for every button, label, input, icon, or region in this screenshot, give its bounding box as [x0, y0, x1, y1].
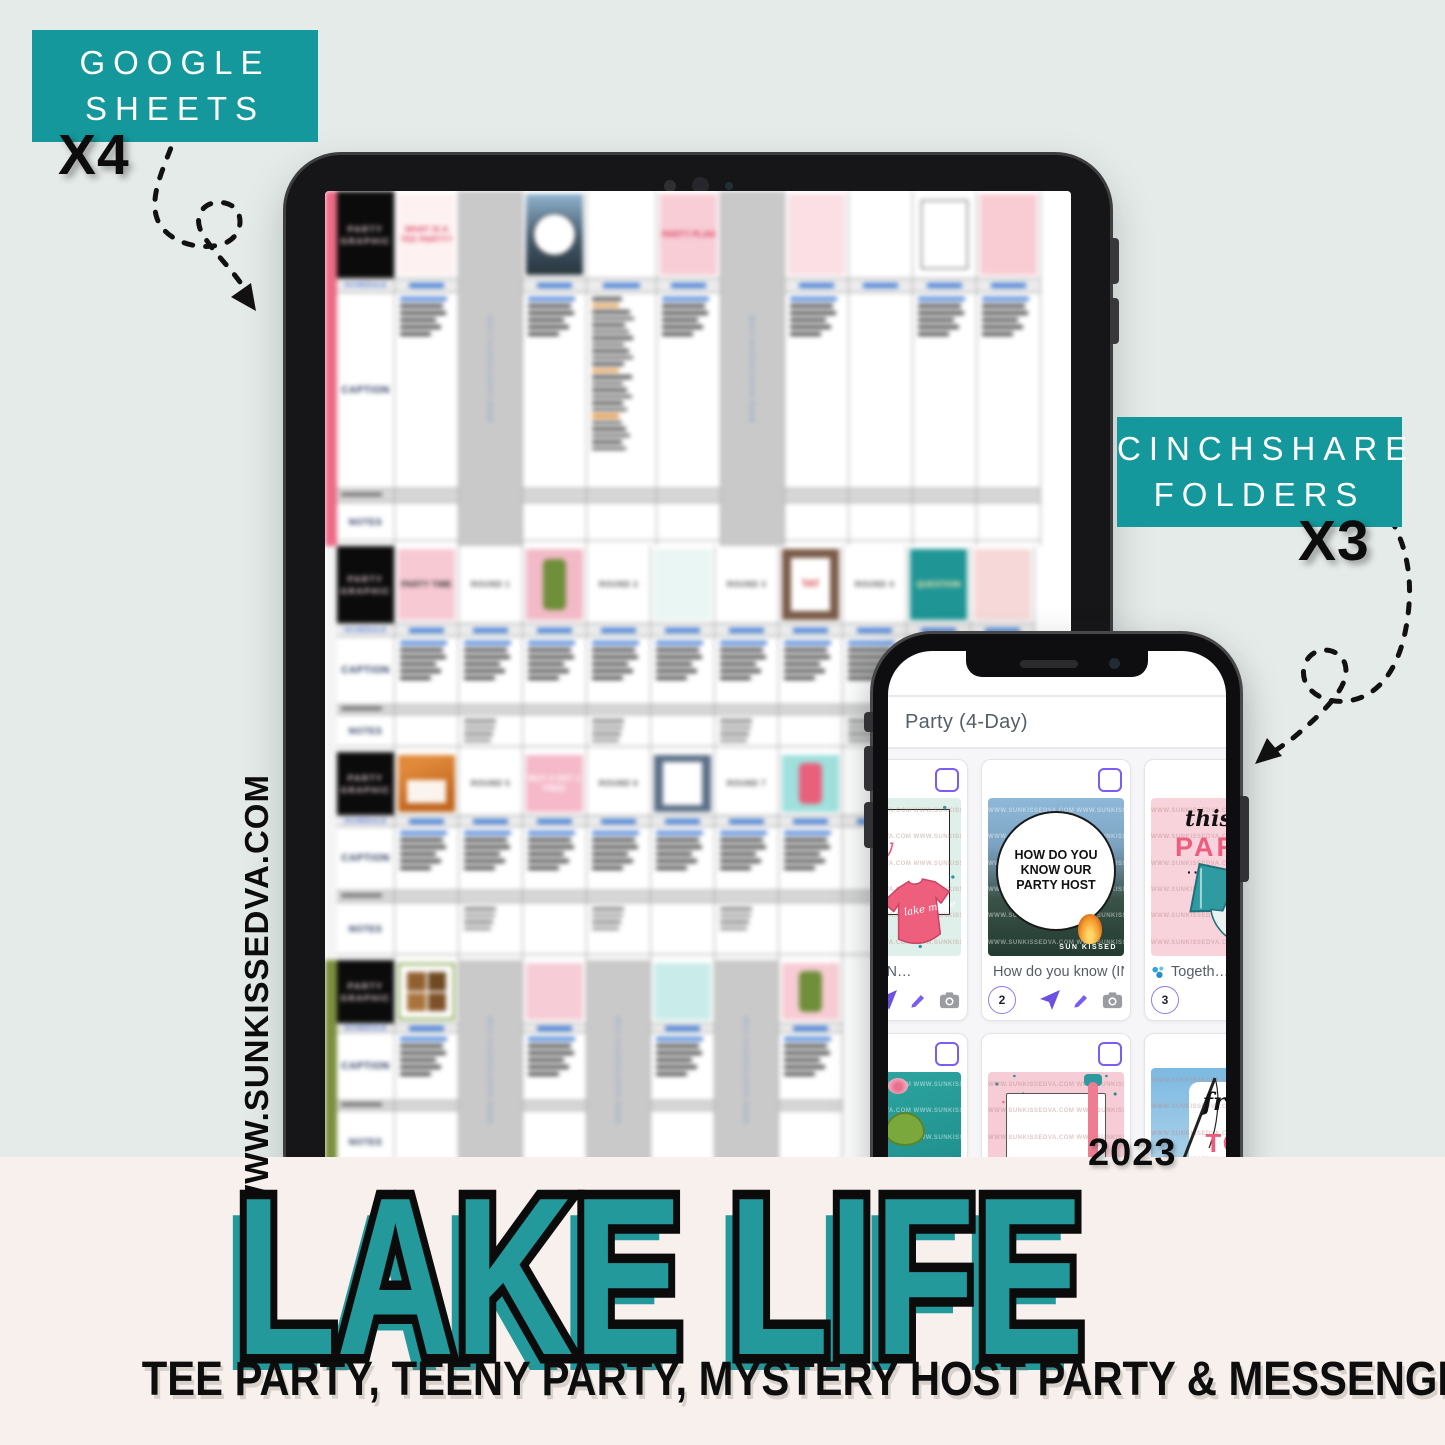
post-checkbox[interactable] [935, 768, 959, 792]
badge-line: CINCHSHARE [1117, 430, 1402, 468]
sheet-label-column: PARTYGRAPHICSCHEDULECAPTIONNOTES [337, 191, 395, 546]
post-row: WWW.SUNKISSEDVA.COM WWW.SUNKISSEDVA.COM … [888, 759, 1226, 1021]
sheet-thumbnail: QUESTION [910, 549, 967, 620]
sheet-thumbnail [654, 755, 711, 812]
post-image-tee-party: WWW.SUNKISSEDVA.COM WWW.SUNKISSEDVA.COM … [888, 798, 961, 956]
promo-canvas: GOOGLE SHEETS X4 CINCHSHARE FOLDERS X3 P… [0, 0, 1445, 1445]
post-caption: How do you know (IN… [988, 960, 1124, 984]
post-card: WWW.SUNKISSEDVA.COM WWW.SUNKISSEDVA.COM … [888, 759, 968, 1021]
circle-graphic: HOW DO YOU KNOW OUR PARTY HOST [996, 811, 1116, 931]
round-label: ROUND 7 [727, 779, 767, 788]
sheet-column [587, 191, 657, 546]
count-x4: X4 [58, 122, 130, 188]
phone-mockup: Party (4-Day) WWW.SUNKISSEDVA.COM WWW.SU… [870, 631, 1243, 1221]
sheet-column: TAT [779, 546, 843, 752]
party-graphic-cell: PARTYGRAPHIC [337, 546, 394, 624]
sheet-column: ROUND 3 [715, 546, 779, 752]
sheet-thumbnail [526, 963, 583, 1020]
folder-title: Party (4-Day) [888, 697, 1226, 747]
caption-row-label: CAPTION [337, 827, 394, 891]
schedule-row-label: SCHEDULE [337, 816, 394, 827]
arrowhead-icon [231, 283, 256, 311]
sheet-thumbnail [788, 194, 845, 275]
schedule-row-label: SCHEDULE [337, 624, 394, 637]
post-image-shorts: WWW.SUNKISSEDVA.COM WWW.SUNKISSEDVA.COM … [1151, 798, 1226, 956]
sheet-thumbnail [782, 963, 839, 1020]
sheet-thumbnail [782, 755, 839, 812]
sheet-column: ROUND 2 [587, 546, 651, 752]
notes-row-label: NOTES [337, 715, 394, 747]
sheet-gray-band: WWW.SUNKISSEDVA.COM [715, 960, 779, 1178]
cinchshare-icon [1151, 965, 1166, 980]
caption-row-label: CAPTION [337, 1033, 394, 1101]
sheet-thumbnail [398, 755, 455, 812]
sheet-column [523, 191, 587, 546]
sheet-label-column: PARTYGRAPHICSCHEDULECAPTIONNOTES [337, 546, 395, 752]
sheet-column: PARTY PLAN [657, 191, 721, 546]
camera-icon[interactable] [938, 989, 961, 1012]
phone-volume-button [864, 746, 873, 791]
sheet-gray-band: WWW.SUNKISSEDVA.COM [459, 191, 523, 546]
sheet-column [913, 191, 977, 546]
sheet-thumbnail [654, 963, 711, 1020]
round-label: ROUND 2 [599, 580, 639, 589]
sheet-column [977, 191, 1041, 546]
party-graphic-cell: PARTYGRAPHIC [337, 752, 394, 816]
subtitle: TEE PARTY, TEENY PARTY, MYSTERY HOST PAR… [142, 1352, 1303, 1407]
sheet-column [651, 752, 715, 960]
sheet-thumbnail [916, 194, 973, 275]
send-icon[interactable] [1038, 988, 1062, 1012]
sheet-column [651, 546, 715, 752]
count-x3: X3 [1298, 508, 1370, 574]
post-number-badge: 2 [988, 986, 1016, 1014]
party-graphic-cell: PARTYGRAPHIC [337, 191, 394, 279]
post-actions [888, 984, 961, 1016]
round-label: ROUND 4 [855, 580, 895, 589]
sheet-column: ROUND 6 [587, 752, 651, 960]
lotus-icon [888, 1078, 908, 1094]
badge-line: GOOGLE [32, 44, 318, 82]
post-number-badge: 3 [1151, 986, 1179, 1014]
sheet-thumbnail [974, 549, 1031, 620]
post-image-campfire: WWW.SUNKISSEDVA.COM WWW.SUNKISSEDVA.COM … [988, 798, 1124, 956]
sheet-column: ROUND 5 [459, 752, 523, 960]
post-checkbox[interactable] [1098, 1042, 1122, 1066]
phone-mute-switch [864, 712, 873, 732]
tablet-volume-button [1110, 298, 1119, 344]
sheet-thumbnail: BUY 4 GET 1 FREE [526, 755, 583, 812]
round-label: ROUND 6 [599, 779, 639, 788]
post-caption: (INSERT N… [888, 960, 961, 984]
year-label: 2023 [1088, 1132, 1177, 1175]
notes-row-label: NOTES [337, 503, 394, 541]
round-label: ROUND 1 [471, 580, 511, 589]
tshirt-illustration: lake made [888, 873, 961, 956]
post-actions: 2 [988, 984, 1124, 1016]
campfire-icon [1078, 914, 1102, 944]
sheet-thumbnail: TAT [782, 549, 839, 620]
caption-row-label: CAPTION [337, 637, 394, 705]
sheet-thumbnail: PARTY PLAN [660, 194, 717, 275]
edit-icon[interactable] [909, 991, 928, 1010]
post-checkbox[interactable] [1098, 768, 1122, 792]
sheet-column: ROUND 7 [715, 752, 779, 960]
sheet-column: BUY 4 GET 1 FREE [523, 752, 587, 960]
phone-notch [966, 651, 1148, 677]
round-label: ROUND 3 [727, 580, 767, 589]
sheet-thumbnail [398, 963, 455, 1020]
sheet-thumbnail: WHAT IS A TEE PARTY? [398, 194, 455, 275]
sheet-column [785, 191, 849, 546]
sheet-column: WHAT IS A TEE PARTY? [395, 191, 459, 546]
dashed-arrow-to-tablet [130, 115, 300, 340]
website-watermark: WWW.SUNKISSEDVA.COM [236, 770, 278, 1220]
edit-icon[interactable] [1072, 991, 1091, 1010]
phone-power-button [1240, 796, 1249, 882]
round-label: ROUND 5 [471, 779, 511, 788]
sheet-label-column: PARTYGRAPHICSCHEDULECAPTIONNOTES [337, 752, 395, 960]
caption-row-label: CAPTION [337, 293, 394, 489]
sheet-column [779, 752, 843, 960]
sheet-thumbnail [654, 549, 711, 620]
sheet-column: PARTY TIME [395, 546, 459, 752]
sheet-column [523, 546, 587, 752]
post-actions: 3 [1151, 984, 1226, 1016]
sheet-thumbnail: PARTY TIME [398, 549, 455, 620]
sheet-gray-band: WWW.SUNKISSEDVA.COM [587, 960, 651, 1178]
notes-row-label: NOTES [337, 903, 394, 955]
sheet-section: PARTYGRAPHICSCHEDULECAPTIONNOTESWHAT IS … [325, 191, 1071, 546]
sheet-gray-band: WWW.SUNKISSEDVA.COM [459, 960, 523, 1178]
sheet-column [395, 960, 459, 1178]
sheet-column: ROUND 1 [459, 546, 523, 752]
phone-volume-button [864, 802, 873, 848]
sheet-gray-band: WWW.SUNKISSEDVA.COM [721, 191, 785, 546]
schedule-row-label: SCHEDULE [337, 1024, 394, 1033]
schedule-row-label: SCHEDULE [337, 279, 394, 293]
post-caption: Togeth… [1151, 960, 1226, 984]
party-graphic-cell: PARTYGRAPHIC [337, 960, 394, 1024]
sheet-label-column: PARTYGRAPHICSCHEDULECAPTIONNOTES [337, 960, 395, 1178]
shorts-illustration [1176, 859, 1226, 956]
sheet-column [523, 960, 587, 1178]
send-icon[interactable] [888, 988, 899, 1012]
sheet-thumbnail [526, 194, 583, 275]
post-checkbox[interactable] [935, 1042, 959, 1066]
post-card: WWW.SUNKISSEDVA.COM WWW.SUNKISSEDVA.COM … [1144, 759, 1226, 1021]
sheet-column [849, 191, 913, 546]
sheet-column [779, 960, 843, 1178]
sheet-column [395, 752, 459, 960]
sheet-column [651, 960, 715, 1178]
sheet-filler [1041, 191, 1071, 546]
brand-label: SUN KISSED [1059, 944, 1117, 951]
camera-icon[interactable] [1101, 989, 1124, 1012]
post-card: WWW.SUNKISSEDVA.COM WWW.SUNKISSEDVA.COM … [981, 759, 1131, 1021]
sheet-thumbnail [980, 194, 1037, 275]
camera-dot-icon [1109, 658, 1120, 669]
tablet-volume-button [1110, 238, 1119, 284]
speaker-icon [1020, 660, 1078, 668]
sheet-thumbnail [526, 549, 583, 620]
